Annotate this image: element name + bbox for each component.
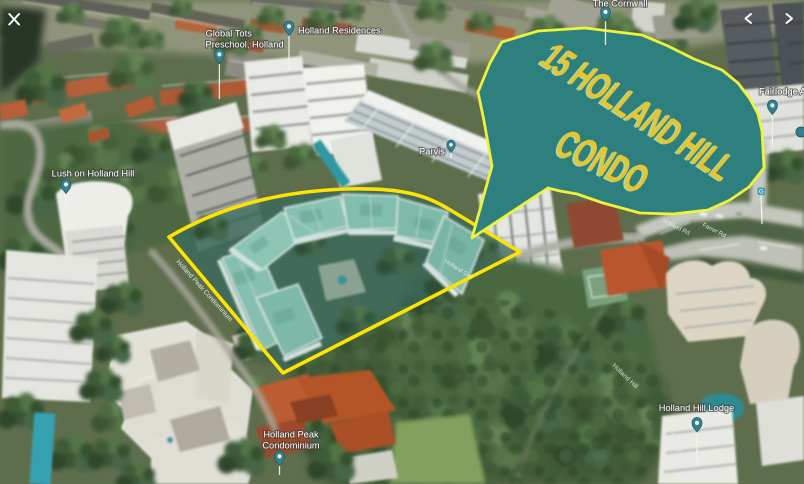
svg-text:Global Tots: Global Tots [206, 29, 253, 39]
svg-text:G: G [759, 190, 764, 196]
svg-text:Holland Hill Lodge: Holland Hill Lodge [659, 403, 734, 413]
svg-text:Condominium: Condominium [262, 441, 320, 451]
svg-text:Fairlodge A: Fairlodge A [759, 87, 804, 97]
svg-text:The Cornwall: The Cornwall [593, 0, 648, 9]
svg-text:Holland Peak: Holland Peak [263, 430, 319, 440]
svg-text:Holland Residences: Holland Residences [298, 26, 381, 36]
svg-text:Lush on Holland Hill: Lush on Holland Hill [52, 169, 135, 179]
svg-text:Preschool, Holland: Preschool, Holland [206, 39, 284, 49]
svg-text:Parvis: Parvis [419, 147, 445, 157]
